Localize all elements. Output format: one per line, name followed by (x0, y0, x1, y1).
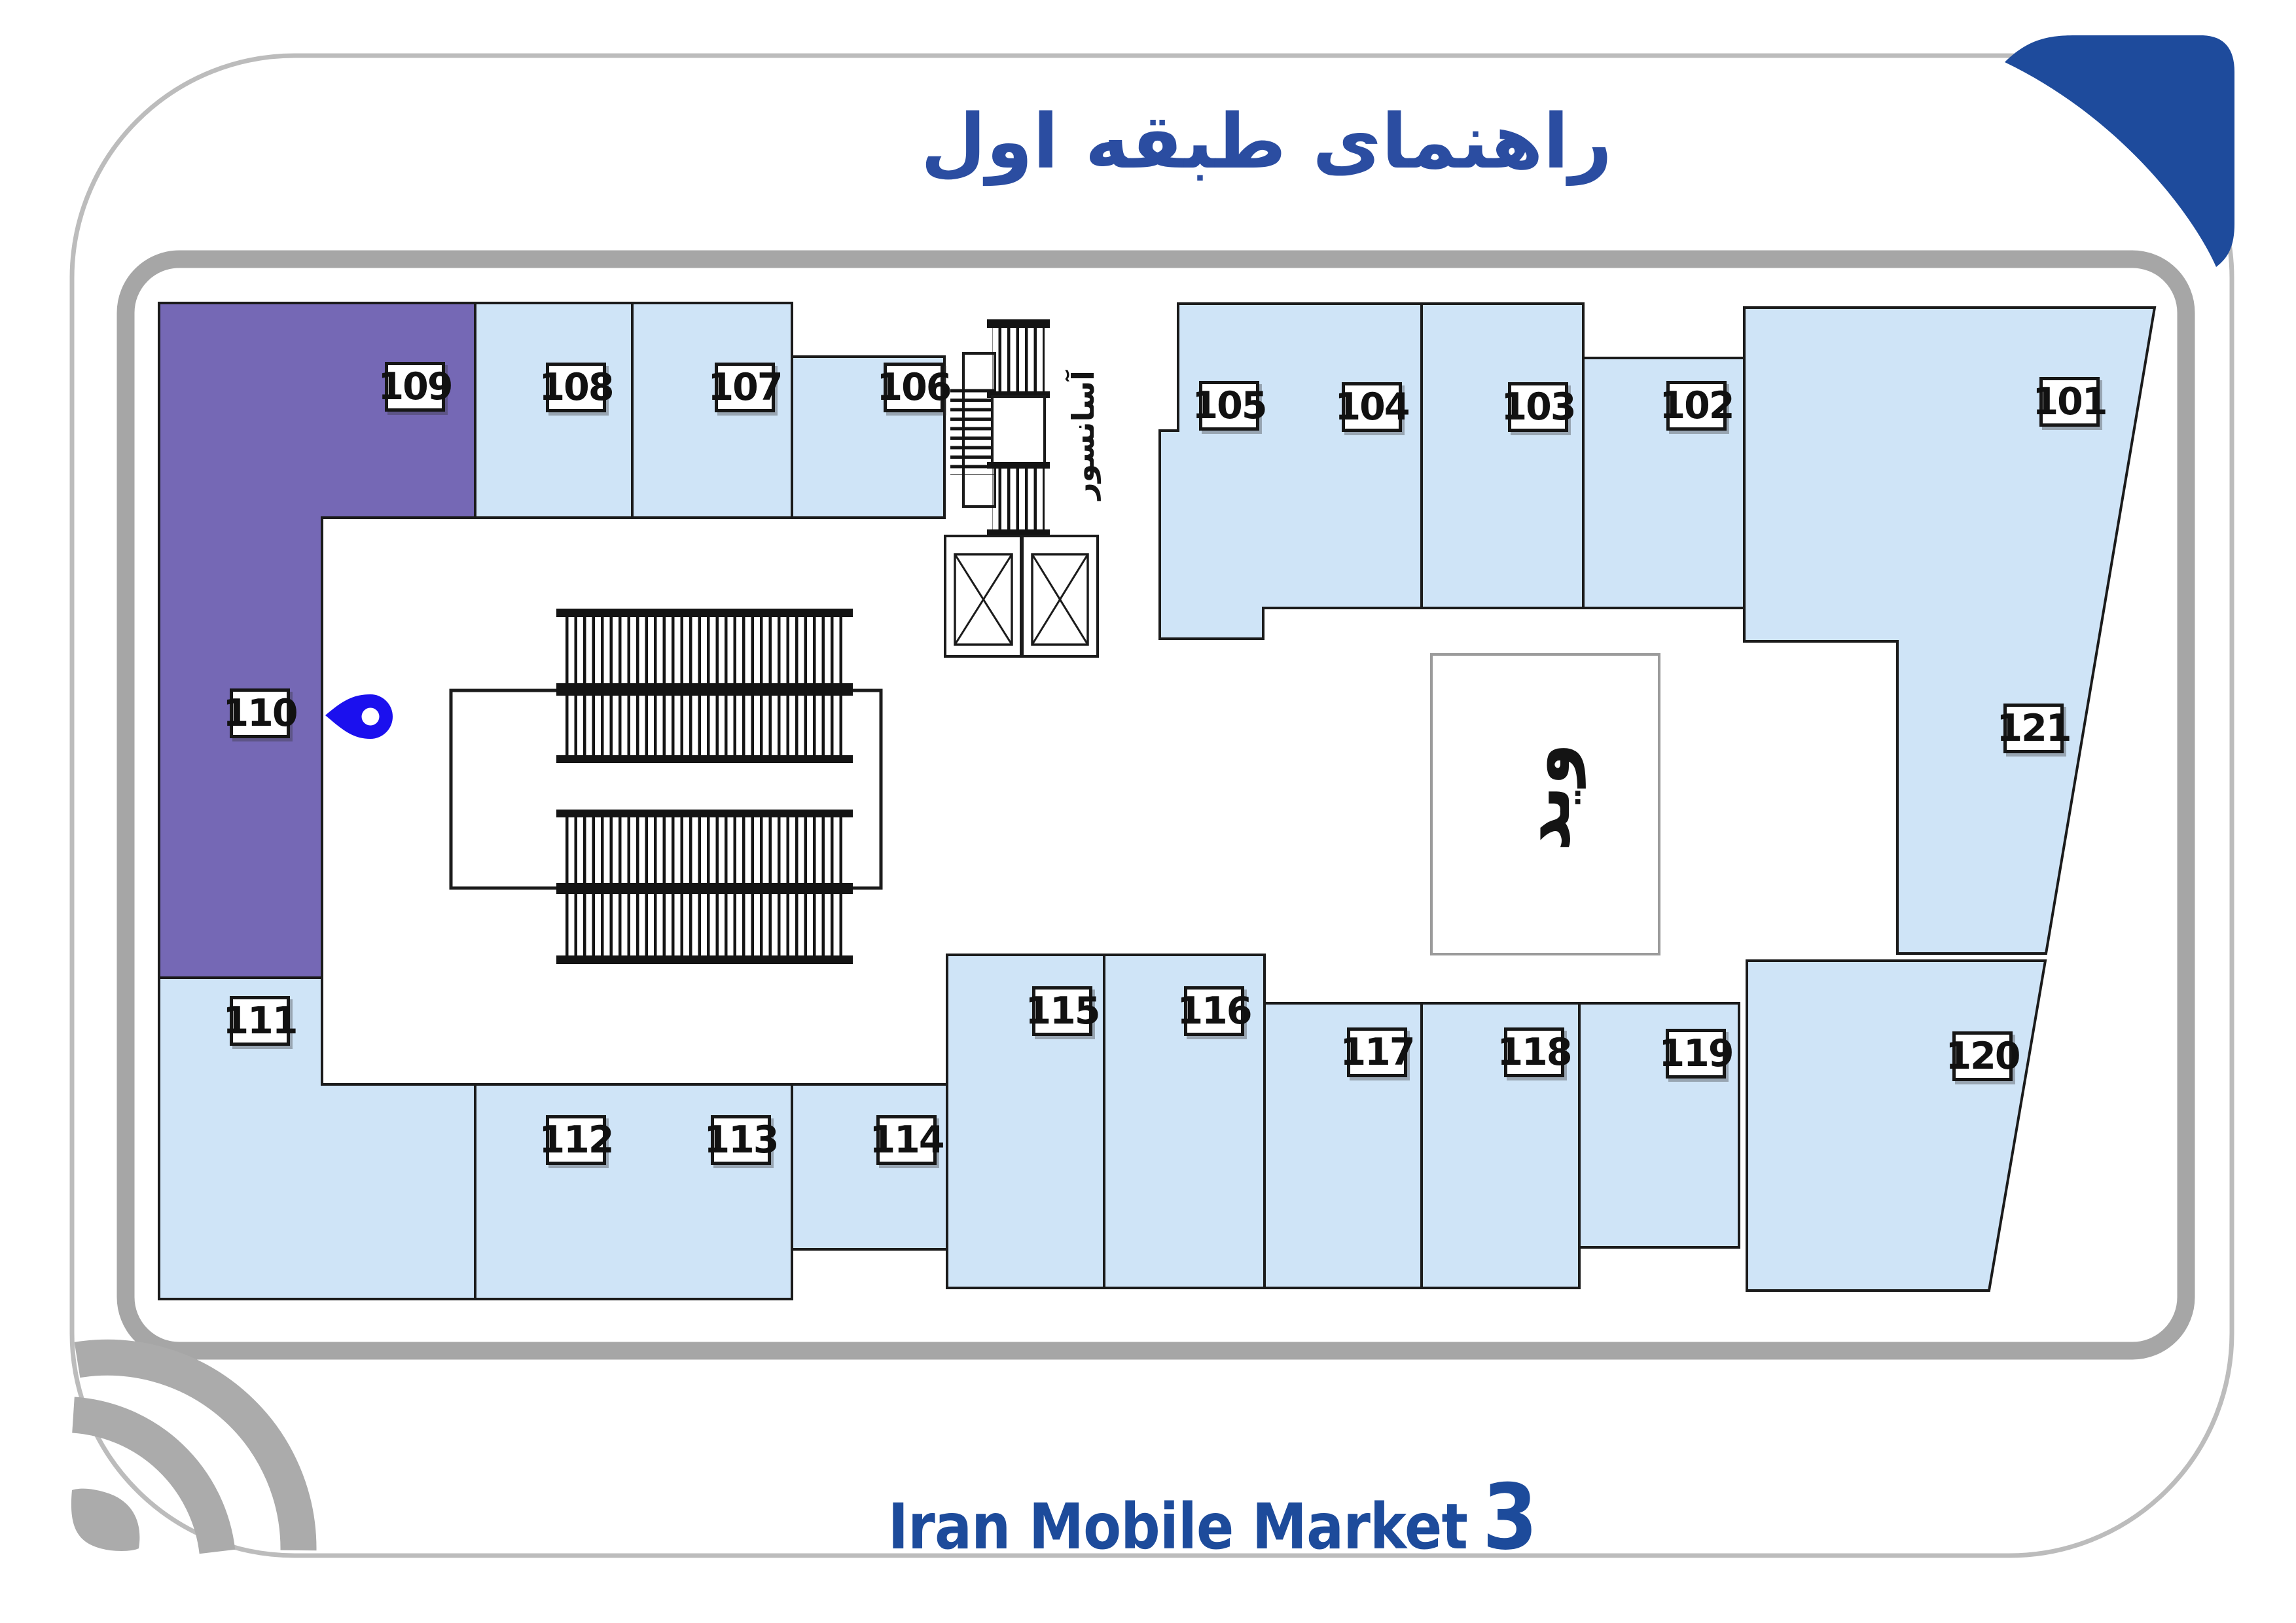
footer-brand-number: 3 (1482, 1465, 1538, 1570)
unit-label-112[interactable]: 112 (546, 1115, 606, 1165)
floor-plan-canvas (0, 0, 2296, 1623)
escalator-ramp-hatch (562, 615, 848, 686)
unit-label-119[interactable]: 119 (1666, 1029, 1726, 1079)
unit-label-117[interactable]: 117 (1347, 1027, 1407, 1077)
footer-brand-text: Iran Mobile Market (888, 1490, 1467, 1563)
floor-guide-page: راهنمای طبقه اول آسانسور ويد 101 102 103… (0, 0, 2296, 1623)
unit-label-114[interactable]: 114 (876, 1115, 937, 1165)
unit-label-106[interactable]: 106 (884, 363, 944, 412)
unit-label-102[interactable]: 102 (1666, 381, 1727, 431)
unit-105-104-area[interactable] (1160, 304, 1422, 639)
stair-mid-landing (992, 397, 1045, 467)
unit-label-109[interactable]: 109 (385, 362, 445, 412)
unit-label-105[interactable]: 105 (1199, 381, 1259, 431)
unit-label-113[interactable]: 113 (711, 1115, 771, 1165)
unit-103-area[interactable] (1422, 304, 1583, 608)
page-title: راهنمای طبقه اول (921, 98, 1613, 186)
unit-label-104[interactable]: 104 (1342, 382, 1402, 432)
escalator-ramp-hatch (562, 695, 848, 758)
escalator-ramp-hatch (562, 892, 848, 957)
unit-label-118[interactable]: 118 (1504, 1027, 1564, 1077)
unit-114-area[interactable] (792, 1084, 947, 1249)
unit-label-115[interactable]: 115 (1032, 986, 1092, 1036)
unit-label-111[interactable]: 111 (230, 996, 290, 1046)
corner-swoosh-decoration (2005, 35, 2234, 267)
stair-upper-run-hatch (992, 323, 1045, 397)
elevator-shafts (945, 536, 1098, 656)
unit-label-107[interactable]: 107 (715, 363, 775, 412)
unit-label-121[interactable]: 121 (2003, 704, 2064, 753)
void-label: ويد (1505, 743, 1585, 851)
unit-label-110[interactable]: 110 (230, 688, 290, 738)
unit-label-108[interactable]: 108 (546, 363, 606, 412)
unit-label-101[interactable]: 101 (2039, 377, 2100, 427)
elevator-label: آسانسور (1066, 370, 1101, 500)
stair-lower-run-hatch (992, 466, 1045, 533)
footer-brand: Iran Mobile Market 3 (888, 1465, 1538, 1570)
staircase-block (950, 319, 1050, 538)
unit-label-120[interactable]: 120 (1952, 1031, 2013, 1081)
unit-label-103[interactable]: 103 (1508, 382, 1568, 432)
unit-label-116[interactable]: 116 (1184, 986, 1244, 1036)
escalator-ramp-hatch (562, 816, 848, 884)
